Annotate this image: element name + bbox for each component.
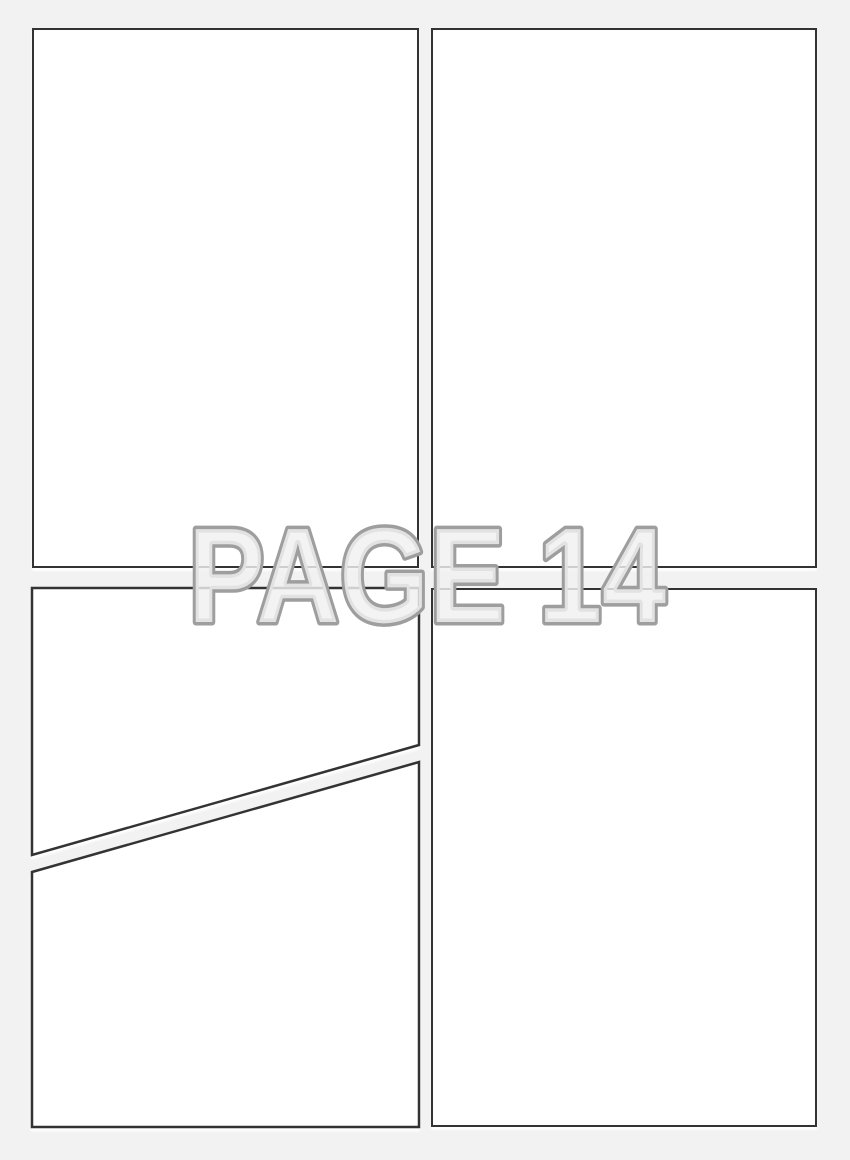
- panel-bottom-left-group: [32, 588, 419, 1127]
- page-title-text: PAGE 14: [188, 500, 666, 651]
- panel-top-left: [32, 28, 419, 568]
- comic-page-template: PAGE 14: [0, 0, 850, 1160]
- panel-top-right: [431, 28, 817, 568]
- page-title: PAGE 14: [150, 500, 704, 650]
- panel-bottom-right: [431, 588, 817, 1127]
